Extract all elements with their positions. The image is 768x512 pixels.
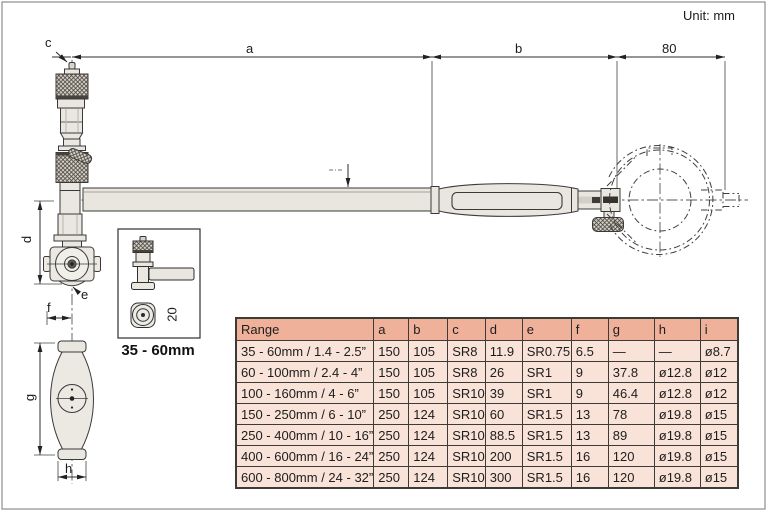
table-cell: 88.5	[485, 425, 522, 446]
table-cell: 6.5	[571, 341, 608, 362]
table-cell: 89	[608, 425, 654, 446]
table-cell: 78	[608, 404, 654, 425]
table-cell: SR0.75	[522, 341, 571, 362]
table-cell: ø12	[700, 362, 738, 383]
column-header: Range	[236, 318, 374, 341]
table-cell: 200	[485, 446, 522, 467]
table-cell: SR10	[448, 446, 486, 467]
column-header: a	[374, 318, 409, 341]
table-cell: 60 - 100mm / 2.4 - 4”	[236, 362, 374, 383]
table-cell: 600 - 800mm / 24 - 32”	[236, 467, 374, 489]
column-header: f	[571, 318, 608, 341]
dim-label-d: d	[20, 236, 33, 243]
table-cell: ø12	[700, 383, 738, 404]
column-header: h	[654, 318, 700, 341]
table-cell: SR1	[522, 383, 571, 404]
table-cell: 250	[374, 404, 409, 425]
table-cell: ø19.8	[654, 446, 700, 467]
table-row: 100 - 160mm / 4 - 6”150105SR1039SR1946.4…	[236, 383, 738, 404]
table-cell: 124	[409, 446, 448, 467]
table-cell: SR10	[448, 383, 486, 404]
table-cell: 9	[571, 383, 608, 404]
table-cell: 46.4	[608, 383, 654, 404]
dim-label-e: e	[81, 288, 88, 301]
table-row: 60 - 100mm / 2.4 - 4”150105SR826SR1937.8…	[236, 362, 738, 383]
dim-label-c: c	[45, 36, 52, 49]
table-cell: ø19.8	[654, 467, 700, 489]
table-row: 400 - 600mm / 16 - 24”250124SR10200SR1.5…	[236, 446, 738, 467]
table-cell: 13	[571, 425, 608, 446]
table-cell: 150	[374, 362, 409, 383]
inset-range-caption: 35 - 60mm	[110, 342, 206, 359]
spec-table: Rangeabcdefghi 35 - 60mm / 1.4 - 2.5”150…	[235, 317, 739, 489]
table-cell: ø15	[700, 404, 738, 425]
table-cell: 105	[409, 341, 448, 362]
table-cell: 250	[374, 467, 409, 489]
table-cell: 250	[374, 425, 409, 446]
catalog-page: Unit: mm a b 80 c d e f g h 20 35 - 60mm…	[0, 0, 768, 512]
table-cell: 400 - 600mm / 16 - 24”	[236, 446, 374, 467]
table-cell: 60	[485, 404, 522, 425]
table-cell: 120	[608, 467, 654, 489]
column-header: g	[608, 318, 654, 341]
table-cell: 300	[485, 467, 522, 489]
table-cell: ø15	[700, 425, 738, 446]
table-cell: SR10	[448, 404, 486, 425]
table-cell: SR8	[448, 362, 486, 383]
column-header: i	[700, 318, 738, 341]
table-row: 250 - 400mm / 10 - 16”250124SR1088.5SR1.…	[236, 425, 738, 446]
table-cell: ø12.8	[654, 362, 700, 383]
table-cell: 124	[409, 467, 448, 489]
table-cell: 120	[608, 446, 654, 467]
dim-label-20: 20	[166, 307, 179, 321]
table-row: 150 - 250mm / 6 - 10”250124SR1060SR1.513…	[236, 404, 738, 425]
table-row: 600 - 800mm / 24 - 32”250124SR10300SR1.5…	[236, 467, 738, 489]
dim-label-a: a	[246, 42, 253, 55]
dim-label-b: b	[515, 42, 522, 55]
table-header-row: Rangeabcdefghi	[236, 318, 738, 341]
table-cell: ø15	[700, 446, 738, 467]
table-cell: SR1	[522, 362, 571, 383]
column-header: c	[448, 318, 486, 341]
dim-label-f: f	[47, 301, 51, 314]
table-cell: 37.8	[608, 362, 654, 383]
table-cell: 100 - 160mm / 4 - 6”	[236, 383, 374, 404]
table-cell: SR10	[448, 467, 486, 489]
dim-label-80: 80	[662, 42, 676, 55]
table-cell: ø8.7	[700, 341, 738, 362]
table-cell: 39	[485, 383, 522, 404]
table-cell: 250 - 400mm / 10 - 16”	[236, 425, 374, 446]
unit-label: Unit: mm	[683, 9, 735, 22]
table-cell: 35 - 60mm / 1.4 - 2.5”	[236, 341, 374, 362]
table-cell: —	[608, 341, 654, 362]
table-cell: ø19.8	[654, 425, 700, 446]
table-cell: 124	[409, 425, 448, 446]
dim-label-h: h	[65, 462, 72, 475]
table-cell: 124	[409, 404, 448, 425]
table-cell: 250	[374, 446, 409, 467]
table-cell: 105	[409, 362, 448, 383]
table-cell: 16	[571, 467, 608, 489]
table-cell: 150	[374, 341, 409, 362]
table-cell: —	[654, 341, 700, 362]
table-cell: 13	[571, 404, 608, 425]
table-cell: 9	[571, 362, 608, 383]
table-cell: ø12.8	[654, 383, 700, 404]
dim-label-g: g	[23, 394, 36, 401]
column-header: e	[522, 318, 571, 341]
table-cell: 105	[409, 383, 448, 404]
table-cell: SR1.5	[522, 425, 571, 446]
column-header: d	[485, 318, 522, 341]
table-cell: 11.9	[485, 341, 522, 362]
table-cell: SR10	[448, 425, 486, 446]
table-cell: SR1.5	[522, 446, 571, 467]
table-cell: ø15	[700, 467, 738, 489]
table-cell: 150	[374, 383, 409, 404]
table-cell: SR1.5	[522, 467, 571, 489]
table-cell: 16	[571, 446, 608, 467]
table-cell: 26	[485, 362, 522, 383]
table-cell: ø19.8	[654, 404, 700, 425]
table-cell: 150 - 250mm / 6 - 10”	[236, 404, 374, 425]
table-cell: SR1.5	[522, 404, 571, 425]
table-row: 35 - 60mm / 1.4 - 2.5”150105SR811.9SR0.7…	[236, 341, 738, 362]
table-cell: SR8	[448, 341, 486, 362]
column-header: b	[409, 318, 448, 341]
